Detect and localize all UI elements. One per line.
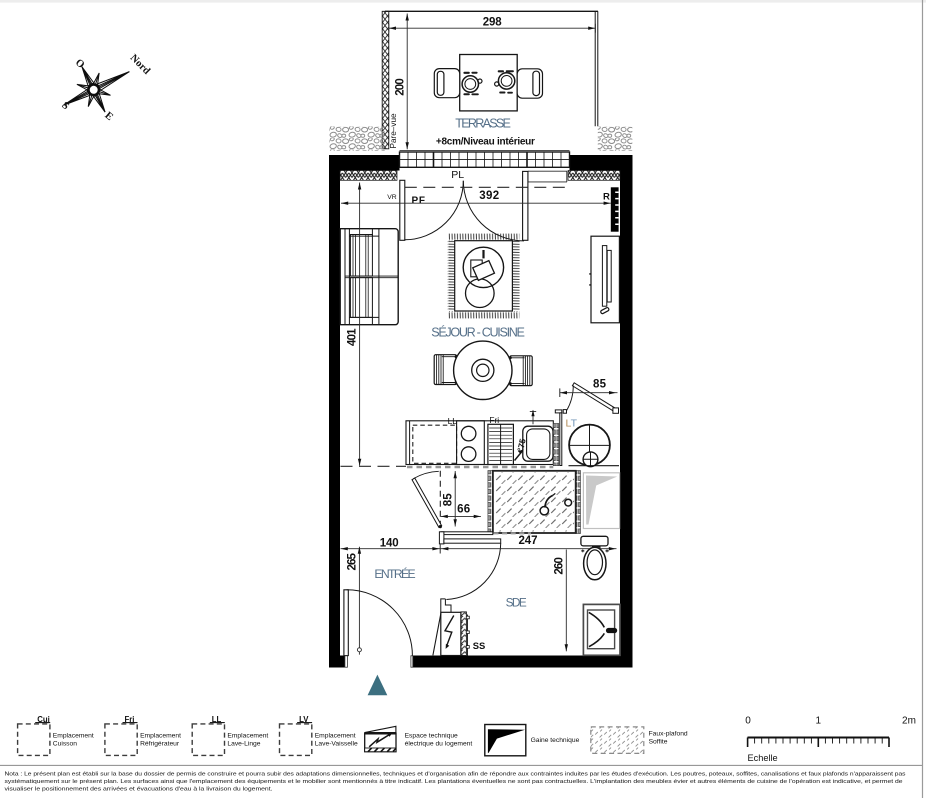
svg-text:265: 265: [347, 552, 359, 570]
svg-text:Gaine technique: Gaine technique: [531, 737, 580, 744]
svg-text:2m: 2m: [902, 716, 916, 727]
svg-text:Lave-Vaisselle: Lave-Vaisselle: [315, 740, 358, 747]
svg-text:Réfrigérateur: Réfrigérateur: [140, 740, 180, 747]
svg-text:Cuisson: Cuisson: [53, 740, 77, 747]
svg-text:85: 85: [442, 493, 454, 507]
svg-text:LL: LL: [448, 416, 458, 426]
svg-text:SÉJOUR - CUISINE: SÉJOUR - CUISINE: [431, 325, 526, 340]
svg-text:Emplacement: Emplacement: [140, 733, 181, 740]
svg-text:R: R: [603, 191, 610, 202]
svg-text:PF: PF: [411, 195, 425, 206]
svg-text:85: 85: [593, 379, 607, 391]
svg-text:200: 200: [394, 78, 406, 96]
svg-text:VR: VR: [387, 194, 397, 201]
svg-text:0: 0: [745, 716, 751, 727]
svg-text:TERRASSE: TERRASSE: [455, 116, 512, 130]
svg-text:Pare–vue: Pare–vue: [389, 113, 398, 148]
svg-text:Espace technique: Espace technique: [405, 733, 458, 740]
svg-text:260: 260: [553, 557, 565, 575]
svg-text:électrique du logement: électrique du logement: [405, 740, 473, 747]
svg-text:systématiquement sur le présen: systématiquement sur le présent plan. Le…: [5, 779, 903, 785]
svg-text:LT: LT: [566, 417, 578, 429]
svg-text:visualiser le positionnement d: visualiser le positionnement des arrivée…: [5, 787, 273, 793]
svg-text:298: 298: [483, 16, 503, 28]
svg-text:Lave-Linge: Lave-Linge: [227, 740, 260, 747]
svg-text:Emplacement: Emplacement: [53, 733, 94, 740]
svg-text:Soffite: Soffite: [649, 738, 668, 745]
svg-text:Fri: Fri: [489, 415, 499, 425]
svg-text:Nota : Le présent plan est éta: Nota : Le présent plan est établi sur la…: [5, 772, 906, 778]
svg-text:SS: SS: [473, 640, 486, 651]
svg-text:ENTRÉE: ENTRÉE: [374, 566, 416, 581]
svg-text:Emplacement: Emplacement: [315, 733, 356, 740]
svg-text:401: 401: [347, 328, 359, 346]
svg-text:247: 247: [519, 535, 538, 547]
svg-text:Faux-plafond: Faux-plafond: [649, 731, 688, 738]
svg-text:Emplacement: Emplacement: [227, 733, 268, 740]
svg-text:Echelle: Echelle: [748, 753, 778, 763]
svg-text:66: 66: [457, 503, 470, 515]
svg-text:392: 392: [479, 190, 499, 202]
svg-text:PL: PL: [451, 169, 464, 181]
svg-text:+8cm/Niveau intérieur: +8cm/Niveau intérieur: [436, 136, 535, 147]
svg-text:140: 140: [380, 537, 399, 549]
svg-text:SDE: SDE: [506, 596, 528, 610]
svg-text:1: 1: [816, 716, 822, 727]
